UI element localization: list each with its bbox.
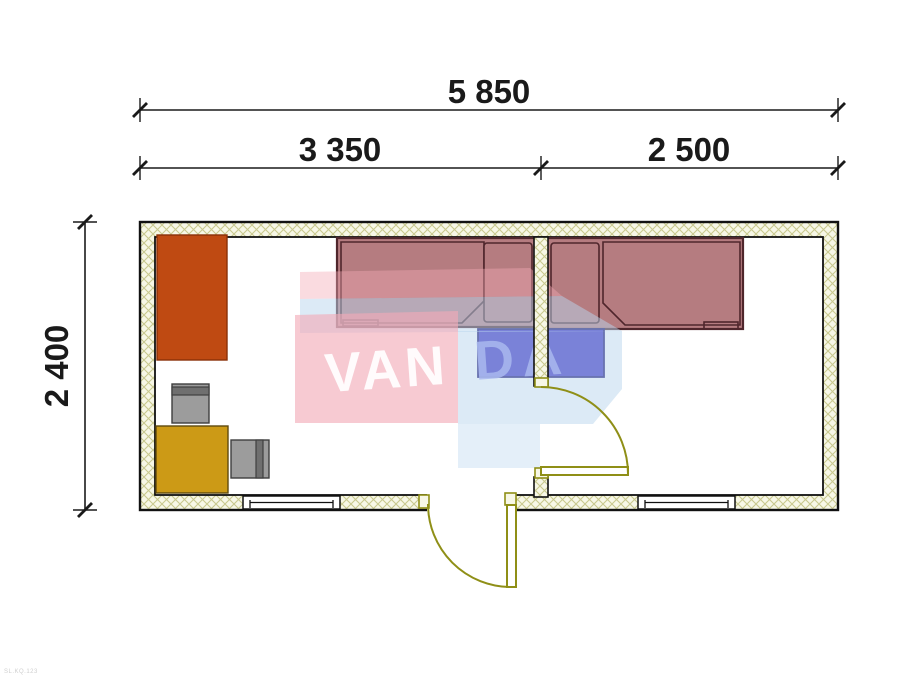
exterior-door-swing-arc: [428, 504, 511, 587]
dimension-left-depth: 2 400: [38, 215, 97, 517]
window-left: [243, 496, 340, 509]
bed-right-blanket: [603, 242, 740, 325]
watermark-text-van: VAN: [323, 334, 451, 405]
chair-2: [231, 440, 269, 478]
watermark-text-da: DA: [472, 323, 572, 392]
dim-label-right-room: 2 500: [648, 131, 731, 168]
exterior-door-opening: [427, 493, 513, 512]
floor-plan-page: 5 850 3 350 2 500 2 400: [0, 0, 924, 700]
floor-plan-drawing: 5 850 3 350 2 500 2 400: [0, 0, 924, 700]
dim-label-depth: 2 400: [38, 325, 75, 408]
partition-wall-stub: [534, 477, 548, 497]
interior-door-leaf: [541, 467, 628, 475]
chair-2-backrest: [256, 440, 263, 478]
dimension-top-total: 5 850: [133, 73, 845, 122]
corner-microtext: SL.KQ.123: [4, 669, 38, 675]
chair-1: [172, 384, 209, 423]
watermark-top-pink-face: [300, 268, 562, 299]
dimension-top-rooms: 3 350 2 500: [133, 131, 845, 180]
cabinet: [156, 426, 228, 493]
chair-1-backrest: [172, 387, 209, 395]
exterior-door: [419, 493, 516, 587]
exterior-door-leaf: [507, 505, 516, 587]
wardrobe: [157, 235, 227, 360]
dim-label-total-width: 5 850: [448, 73, 531, 110]
window-right: [638, 496, 735, 509]
dim-label-left-room: 3 350: [299, 131, 382, 168]
watermark-bottom-blue-face: [458, 424, 540, 468]
